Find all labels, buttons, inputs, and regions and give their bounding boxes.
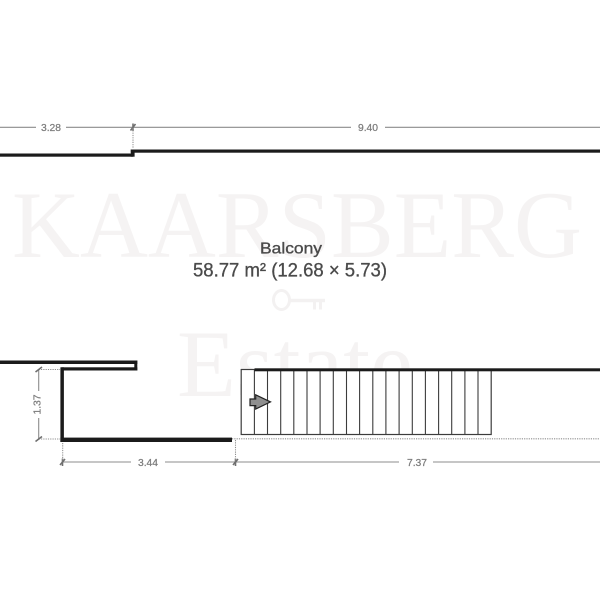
- svg-text:3.44: 3.44: [138, 458, 158, 469]
- svg-text:58.77 m² (12.68 × 5.73): 58.77 m² (12.68 × 5.73): [193, 261, 387, 282]
- svg-text:9.40: 9.40: [358, 123, 378, 134]
- svg-text:1.37: 1.37: [33, 394, 44, 414]
- svg-text:3.28: 3.28: [41, 123, 61, 134]
- svg-text:Balcony: Balcony: [260, 241, 322, 258]
- svg-text:7.37: 7.37: [407, 458, 427, 469]
